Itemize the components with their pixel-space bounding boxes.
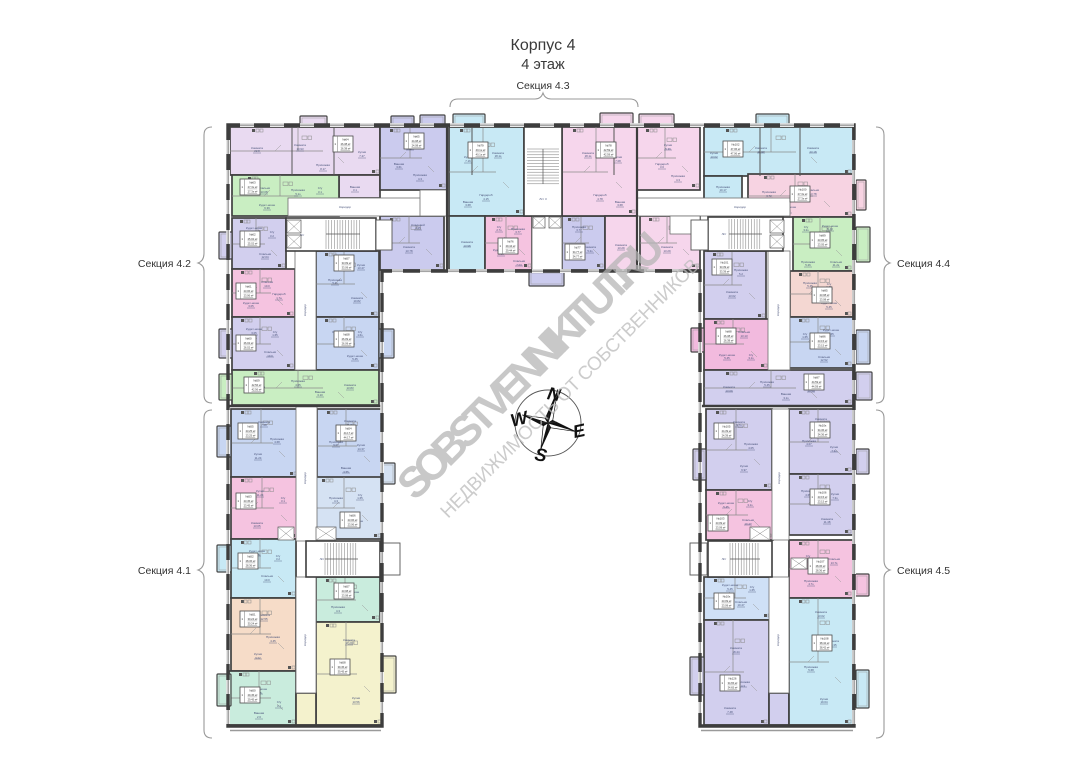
svg-text:Секция 4.4: Секция 4.4 <box>897 258 950 270</box>
svg-text:28.36 м²: 28.36 м² <box>816 564 826 568</box>
svg-text:44.17 м²: 44.17 м² <box>344 431 354 435</box>
svg-text:Секция 4.5: Секция 4.5 <box>897 565 950 577</box>
svg-text:№98: №98 <box>725 330 732 334</box>
svg-text:23.09 м²: 23.09 м² <box>722 599 732 603</box>
svg-text:5.45: 5.45 <box>724 356 730 360</box>
svg-text:№100: №100 <box>799 188 807 192</box>
svg-text:29.44 м²: 29.44 м² <box>506 244 516 248</box>
svg-text:Коридор: Коридор <box>777 472 781 484</box>
svg-text:12.04: 12.04 <box>262 255 269 259</box>
svg-text:23.06 м²: 23.06 м² <box>348 523 358 527</box>
svg-text:7.27: 7.27 <box>359 154 365 158</box>
svg-text:3.1: 3.1 <box>281 499 285 503</box>
svg-text:23.08 м²: 23.08 м² <box>820 298 830 302</box>
svg-text:Лст: Лст <box>320 557 325 561</box>
svg-text:№62: №62 <box>249 233 256 237</box>
svg-text:6.39: 6.39 <box>264 206 270 210</box>
svg-text:23.18: 23.18 <box>810 150 817 154</box>
svg-text:№57: №57 <box>343 585 350 589</box>
svg-text:23.05 м²: 23.05 м² <box>818 238 828 242</box>
svg-text:4.15: 4.15 <box>483 197 489 201</box>
svg-text:10.0: 10.0 <box>267 354 273 358</box>
svg-text:№57: №57 <box>343 257 350 261</box>
svg-text:7.3s: 7.3s <box>832 496 838 500</box>
svg-text:3.10: 3.10 <box>317 393 323 397</box>
svg-text:№78: №78 <box>605 144 612 148</box>
svg-text:5.1s: 5.1s <box>295 192 301 196</box>
svg-text:13.47: 13.47 <box>358 266 365 270</box>
svg-text:47.06 м²: 47.06 м² <box>731 152 741 156</box>
svg-text:33.39 м²: 33.39 м² <box>720 270 730 274</box>
svg-text:5.45: 5.45 <box>826 305 832 309</box>
svg-text:№77: №77 <box>574 246 581 250</box>
svg-text:39.45 м²: 39.45 м² <box>338 665 348 669</box>
svg-text:7.48: 7.48 <box>727 710 733 714</box>
svg-text:13.56: 13.56 <box>353 700 360 704</box>
svg-text:17.29: 17.29 <box>346 641 353 645</box>
svg-text:№10s: №10s <box>819 424 827 428</box>
svg-text:№60: №60 <box>245 337 252 341</box>
svg-text:3.1: 3.1 <box>277 704 281 708</box>
svg-text:7.08: 7.08 <box>261 423 267 427</box>
svg-text:19.64: 19.64 <box>821 700 828 704</box>
svg-text:3.55: 3.55 <box>343 470 349 474</box>
svg-text:26.38 м²: 26.38 м² <box>724 339 734 343</box>
svg-text:18.1s: 18.1s <box>585 154 592 158</box>
svg-text:№59: №59 <box>253 379 260 383</box>
svg-text:13.02: 13.02 <box>711 155 718 159</box>
svg-text:11.2s: 11.2s <box>833 263 840 267</box>
svg-text:10.47: 10.47 <box>738 603 745 607</box>
svg-text:23.25 м²: 23.25 м² <box>246 434 256 438</box>
svg-text:34.77 м²: 34.77 м² <box>573 250 583 254</box>
svg-text:13.78: 13.78 <box>810 192 817 196</box>
svg-text:5.45: 5.45 <box>723 505 729 509</box>
svg-text:№105: №105 <box>723 425 731 429</box>
svg-text:11.24: 11.24 <box>257 493 264 497</box>
svg-text:№63: №63 <box>249 181 256 185</box>
svg-text:2.7s: 2.7s <box>496 228 502 232</box>
svg-text:13.13: 13.13 <box>741 334 748 338</box>
svg-text:39.45 м²: 39.45 м² <box>338 670 348 674</box>
svg-text:7.16: 7.16 <box>465 159 471 163</box>
svg-text:Коридор: Коридор <box>734 205 746 209</box>
svg-text:26.09 м²: 26.09 м² <box>342 337 352 341</box>
svg-text:3.72: 3.72 <box>766 194 772 198</box>
svg-text:23.09 м²: 23.09 м² <box>722 604 732 608</box>
svg-text:42.59 м²: 42.59 м² <box>604 148 614 152</box>
svg-text:23.45 м²: 23.45 м² <box>244 499 254 503</box>
svg-text:10.17: 10.17 <box>720 188 727 192</box>
svg-text:33.39 м²: 33.39 м² <box>720 265 730 269</box>
svg-text:38.42 м²: 38.42 м² <box>820 646 830 650</box>
svg-text:23.25 м²: 23.25 м² <box>246 429 256 433</box>
svg-text:№58: №58 <box>339 661 346 665</box>
svg-text:№61: №61 <box>245 285 252 289</box>
svg-text:3.1: 3.1 <box>318 190 322 194</box>
svg-text:3.1s: 3.1s <box>783 396 789 400</box>
svg-text:24.39 м²: 24.39 м² <box>722 434 732 438</box>
svg-text:23.15 м²: 23.15 м² <box>818 339 828 343</box>
svg-text:5.2: 5.2 <box>739 272 743 276</box>
svg-text:12.55: 12.55 <box>261 617 268 621</box>
svg-text:3.05: 3.05 <box>251 331 257 335</box>
svg-text:6.97: 6.97 <box>741 468 747 472</box>
svg-text:4 этаж: 4 этаж <box>521 57 565 73</box>
svg-text:3.68: 3.68 <box>617 203 623 207</box>
svg-text:№99: №99 <box>819 234 826 238</box>
svg-text:№107: №107 <box>817 560 825 564</box>
svg-text:29.45 м²: 29.45 м² <box>248 698 258 702</box>
svg-text:11.48: 11.48 <box>824 520 831 524</box>
svg-text:26.38 м²: 26.38 м² <box>724 334 734 338</box>
svg-text:Секция 4.2: Секция 4.2 <box>138 258 191 270</box>
svg-text:№54: №54 <box>345 427 352 431</box>
svg-text:Коридор: Коридор <box>303 634 307 646</box>
svg-text:3.2: 3.2 <box>276 557 280 561</box>
svg-text:5.4s: 5.4s <box>332 281 338 285</box>
svg-text:4.05: 4.05 <box>748 446 754 450</box>
svg-text:5.45: 5.45 <box>352 357 358 361</box>
svg-text:23.06 м²: 23.06 м² <box>244 289 254 293</box>
svg-text:Лст: Лст <box>722 557 727 561</box>
svg-text:10.82: 10.82 <box>354 299 361 303</box>
svg-text:№53: №53 <box>245 495 252 499</box>
svg-text:№58: №58 <box>343 333 350 337</box>
svg-text:Коридор: Коридор <box>303 304 307 316</box>
svg-text:13.78: 13.78 <box>406 249 413 253</box>
svg-text:3.2: 3.2 <box>270 234 274 238</box>
svg-text:3.1s: 3.1s <box>748 356 754 360</box>
svg-text:№96: №96 <box>819 335 826 339</box>
svg-text:13.29: 13.29 <box>664 249 671 253</box>
svg-text:42.59 м²: 42.59 м² <box>604 153 614 157</box>
svg-text:2.25: 2.25 <box>415 226 421 230</box>
svg-text:7.08: 7.08 <box>615 159 621 163</box>
svg-text:4.3: 4.3 <box>741 684 745 688</box>
svg-text:25.02 м²: 25.02 м² <box>248 242 258 246</box>
svg-text:44.59 м²: 44.59 м² <box>812 385 822 389</box>
svg-text:2.6: 2.6 <box>257 715 261 719</box>
svg-text:5.43: 5.43 <box>827 227 833 231</box>
svg-text:23.08 м²: 23.08 м² <box>342 594 352 598</box>
svg-text:3.77: 3.77 <box>576 228 582 232</box>
svg-text:7.3s: 7.3s <box>831 449 837 453</box>
svg-text:13.02: 13.02 <box>818 614 825 618</box>
svg-text:23.06 м²: 23.06 м² <box>244 294 254 298</box>
svg-text:№97: №97 <box>813 376 820 380</box>
svg-text:4.78: 4.78 <box>597 197 603 201</box>
svg-text:47.06 м²: 47.06 м² <box>731 147 741 151</box>
svg-text:40.1s м²: 40.1s м² <box>476 153 486 157</box>
svg-text:30.24 м²: 30.24 м² <box>248 622 258 626</box>
svg-text:18.44: 18.44 <box>733 650 740 654</box>
svg-text:23.08 м²: 23.08 м² <box>820 293 830 297</box>
svg-text:4.7s: 4.7s <box>808 582 814 586</box>
svg-text:Лст 3: Лст 3 <box>539 197 547 201</box>
svg-text:Коридор: Коридор <box>776 634 780 646</box>
svg-text:№76: №76 <box>507 240 514 244</box>
svg-text:4.3: 4.3 <box>336 609 340 613</box>
svg-text:27.3s м²: 27.3s м² <box>248 185 258 189</box>
svg-text:23.15 м²: 23.15 м² <box>818 495 828 499</box>
svg-text:13.09: 13.09 <box>726 389 733 393</box>
svg-text:№64: №64 <box>342 138 349 142</box>
svg-text:3.1: 3.1 <box>353 188 357 192</box>
svg-text:Лст: Лст <box>722 232 727 236</box>
svg-text:33.09 м²: 33.09 м² <box>342 266 352 270</box>
svg-text:13.7s: 13.7s <box>831 561 838 565</box>
svg-text:№101: №101 <box>721 261 729 265</box>
svg-text:27.3s м²: 27.3s м² <box>798 197 808 201</box>
svg-text:26.38 м²: 26.38 м² <box>341 142 351 146</box>
svg-text:Коридор: Коридор <box>776 304 780 316</box>
svg-text:3.05: 3.05 <box>248 304 254 308</box>
svg-text:26.09 м²: 26.09 м² <box>342 342 352 346</box>
svg-text:23.15 м²: 23.15 м² <box>818 500 828 504</box>
svg-text:№102: №102 <box>732 143 740 147</box>
svg-text:11.24: 11.24 <box>255 456 262 460</box>
svg-text:№56: №56 <box>349 514 356 518</box>
svg-text:13.83: 13.83 <box>347 386 354 390</box>
svg-text:4.45: 4.45 <box>270 639 276 643</box>
svg-text:13.05: 13.05 <box>254 524 261 528</box>
svg-text:9.02: 9.02 <box>255 656 261 660</box>
svg-text:26.38 м²: 26.38 м² <box>341 147 351 151</box>
svg-text:1.65: 1.65 <box>357 496 363 500</box>
svg-text:5.39: 5.39 <box>665 147 671 151</box>
svg-text:23.15 м²: 23.15 м² <box>818 344 828 348</box>
svg-text:42.56 м²: 42.56 м² <box>252 383 262 387</box>
svg-text:44.17 м²: 44.17 м² <box>344 436 354 440</box>
svg-text:8.17: 8.17 <box>320 167 326 171</box>
svg-text:9.7s: 9.7s <box>736 423 742 427</box>
svg-text:Секция 4.1: Секция 4.1 <box>138 565 191 577</box>
svg-text:13.98: 13.98 <box>464 244 471 248</box>
svg-text:29.44 м²: 29.44 м² <box>506 249 516 253</box>
svg-text:28.36 м²: 28.36 м² <box>816 569 826 573</box>
svg-text:27.3s м²: 27.3s м² <box>798 192 808 196</box>
svg-text:1.65: 1.65 <box>272 333 278 337</box>
svg-text:42.56 м²: 42.56 м² <box>252 388 262 392</box>
svg-text:23.45 м²: 23.45 м² <box>244 504 254 508</box>
svg-text:4.68: 4.68 <box>274 440 280 444</box>
svg-text:3.68: 3.68 <box>465 203 471 207</box>
svg-text:34.65 м²: 34.65 м² <box>728 681 738 685</box>
svg-text:1.65: 1.65 <box>749 588 755 592</box>
svg-text:13.08: 13.08 <box>261 190 268 194</box>
svg-text:13.02: 13.02 <box>729 294 736 298</box>
svg-text:23.05 м²: 23.05 м² <box>818 243 828 247</box>
svg-text:№10s: №10s <box>723 595 731 599</box>
svg-text:№52: №52 <box>247 555 254 559</box>
svg-text:5.45: 5.45 <box>727 587 733 591</box>
svg-text:1.65: 1.65 <box>802 335 808 339</box>
svg-text:24.39 м²: 24.39 м² <box>722 429 732 433</box>
svg-text:28.36 м²: 28.36 м² <box>246 564 256 568</box>
svg-text:№51: №51 <box>249 613 256 617</box>
svg-text:24.08 м²: 24.08 м² <box>412 144 422 148</box>
svg-text:23.09 м²: 23.09 м² <box>716 521 726 525</box>
svg-text:№103: №103 <box>717 517 725 521</box>
svg-text:28.36 м²: 28.36 м² <box>246 559 256 563</box>
svg-text:38.42 м²: 38.42 м² <box>820 641 830 645</box>
svg-text:24.08 м²: 24.08 м² <box>412 139 422 143</box>
svg-text:23.09 м²: 23.09 м² <box>716 526 726 530</box>
svg-text:10.47: 10.47 <box>745 522 752 526</box>
svg-text:№106: №106 <box>819 491 827 495</box>
svg-text:29.45 м²: 29.45 м² <box>248 693 258 697</box>
svg-text:14.37: 14.37 <box>358 447 365 451</box>
svg-text:Коридор: Коридор <box>339 205 351 209</box>
svg-text:Корпус 4: Корпус 4 <box>511 37 576 54</box>
svg-text:23.08 м²: 23.08 м² <box>342 589 352 593</box>
svg-text:10.0: 10.0 <box>264 578 270 582</box>
svg-text:№95: №95 <box>821 289 828 293</box>
svg-text:34.65 м²: 34.65 м² <box>728 686 738 690</box>
svg-text:27.3s м²: 27.3s м² <box>248 190 258 194</box>
svg-text:3.1s: 3.1s <box>747 503 753 507</box>
svg-text:34.36 м²: 34.36 м² <box>818 433 828 437</box>
svg-text:3.61: 3.61 <box>396 165 402 169</box>
svg-text:10.93: 10.93 <box>297 147 304 151</box>
svg-text:10.0: 10.0 <box>264 284 270 288</box>
svg-text:5.2s: 5.2s <box>587 249 593 253</box>
svg-text:№126: №126 <box>729 677 737 681</box>
svg-text:№79: №79 <box>477 144 484 148</box>
svg-text:25.02 м²: 25.02 м² <box>248 237 258 241</box>
svg-text:№65: №65 <box>413 135 420 139</box>
svg-text:34.36 м²: 34.36 м² <box>818 428 828 432</box>
svg-text:5.68: 5.68 <box>808 668 814 672</box>
svg-text:1.7а: 1.7а <box>276 296 282 300</box>
svg-text:44.59 м²: 44.59 м² <box>812 380 822 384</box>
svg-text:23.06 м²: 23.06 м² <box>348 518 358 522</box>
svg-text:4.07: 4.07 <box>806 442 812 446</box>
svg-text:40.1s м²: 40.1s м² <box>476 148 486 152</box>
svg-text:3.77: 3.77 <box>515 230 521 234</box>
svg-text:34.77 м²: 34.77 м² <box>573 255 583 259</box>
svg-text:30.24 м²: 30.24 м² <box>248 617 258 621</box>
svg-text:10.97: 10.97 <box>758 150 765 154</box>
svg-text:4.05: 4.05 <box>295 383 301 387</box>
svg-text:9.07: 9.07 <box>333 443 339 447</box>
svg-text:4.3: 4.3 <box>418 177 422 181</box>
svg-text:12.52: 12.52 <box>821 358 828 362</box>
svg-text:5.26: 5.26 <box>805 263 811 267</box>
svg-text:№50: №50 <box>249 689 256 693</box>
svg-text:Коридор: Коридор <box>303 472 307 484</box>
svg-text:№108: №108 <box>821 637 829 641</box>
svg-text:1.6s: 1.6s <box>357 333 363 337</box>
svg-text:22.8: 22.8 <box>254 149 260 153</box>
svg-text:3.6: 3.6 <box>660 165 664 169</box>
svg-text:7.03: 7.03 <box>516 263 522 267</box>
svg-text:3.2s: 3.2s <box>803 228 809 232</box>
svg-text:Секция 4.3: Секция 4.3 <box>516 80 569 92</box>
svg-text:5.45: 5.45 <box>764 383 770 387</box>
svg-text:26.02 м²: 26.02 м² <box>244 341 254 345</box>
svg-text:4.3: 4.3 <box>676 178 680 182</box>
svg-text:4.3: 4.3 <box>334 499 338 503</box>
svg-text:33.09 м²: 33.09 м² <box>342 261 352 265</box>
svg-text:26.02 м²: 26.02 м² <box>244 346 254 350</box>
svg-text:18.1s: 18.1s <box>495 154 502 158</box>
svg-text:№55: №55 <box>247 425 254 429</box>
